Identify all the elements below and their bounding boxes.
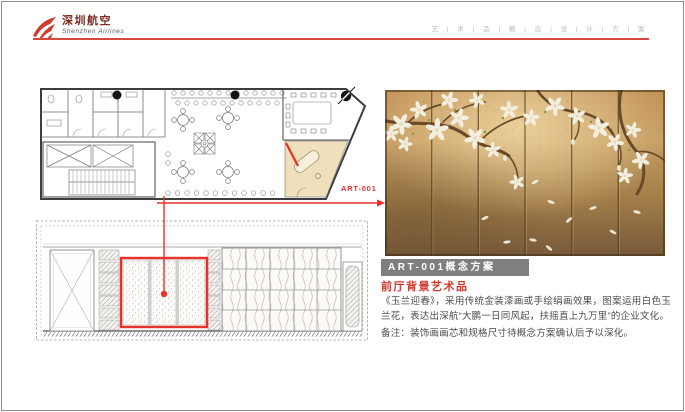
header-tagline: 艺 | 术 | 品 | 概 | 念 | 设 | 计 | 方 | 案 — [432, 23, 648, 33]
artwork-image — [385, 90, 665, 256]
header-rule — [33, 38, 649, 40]
floor-plan-drawing — [35, 82, 370, 207]
art-001-callout-label: ART-001 — [341, 184, 377, 193]
artwork-subtitle: 前厅背景艺术品 — [381, 278, 469, 294]
brand-name-en: Shenzhen Airlines — [62, 28, 124, 36]
brand-name-cn: 深圳航空 — [62, 15, 124, 27]
concept-title-bar: ART-001概念方案 — [381, 259, 529, 276]
elevation-drawing — [35, 218, 370, 343]
slide: 深圳航空 Shenzhen Airlines 艺 | 术 | 品 | 概 | 念… — [0, 0, 685, 412]
artwork-description: 《玉兰迎春》，采用传统金装漆画或手绘绢画效果，图案运用白色玉兰花，表达出深航“大… — [381, 294, 671, 324]
artwork-note: 备注：装饰画画芯和规格尺寸待概念方案确认后予以深化。 — [381, 326, 671, 341]
